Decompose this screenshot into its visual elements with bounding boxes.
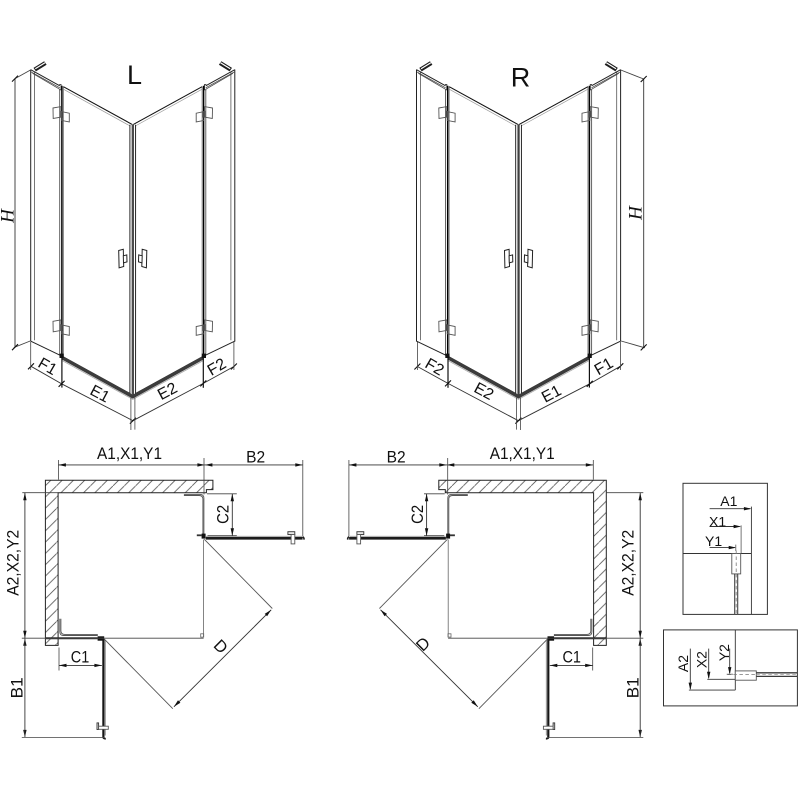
svg-text:B1: B1 <box>623 677 642 698</box>
svg-text:B2: B2 <box>246 448 265 467</box>
svg-text:A1: A1 <box>720 493 737 509</box>
svg-text:A1,X1,Y1: A1,X1,Y1 <box>97 444 162 463</box>
svg-text:Y1: Y1 <box>705 533 722 549</box>
svg-text:A2,X2,Y2: A2,X2,Y2 <box>619 530 638 596</box>
svg-text:B2: B2 <box>387 448 406 467</box>
svg-text:H: H <box>0 208 19 224</box>
svg-text:X2: X2 <box>693 651 709 668</box>
svg-text:Y2: Y2 <box>716 644 732 661</box>
svg-text:C1: C1 <box>71 648 90 667</box>
svg-text:C2: C2 <box>214 505 233 524</box>
svg-text:A1,X1,Y1: A1,X1,Y1 <box>490 444 555 463</box>
svg-text:A2: A2 <box>675 655 691 672</box>
svg-text:H: H <box>626 205 647 221</box>
svg-text:X1: X1 <box>709 514 726 530</box>
svg-text:R: R <box>511 63 531 93</box>
svg-text:L: L <box>127 60 142 90</box>
svg-text:B1: B1 <box>8 677 27 698</box>
svg-text:C2: C2 <box>408 505 427 524</box>
svg-text:A2,X2,Y2: A2,X2,Y2 <box>3 530 22 596</box>
svg-text:C1: C1 <box>562 648 581 667</box>
